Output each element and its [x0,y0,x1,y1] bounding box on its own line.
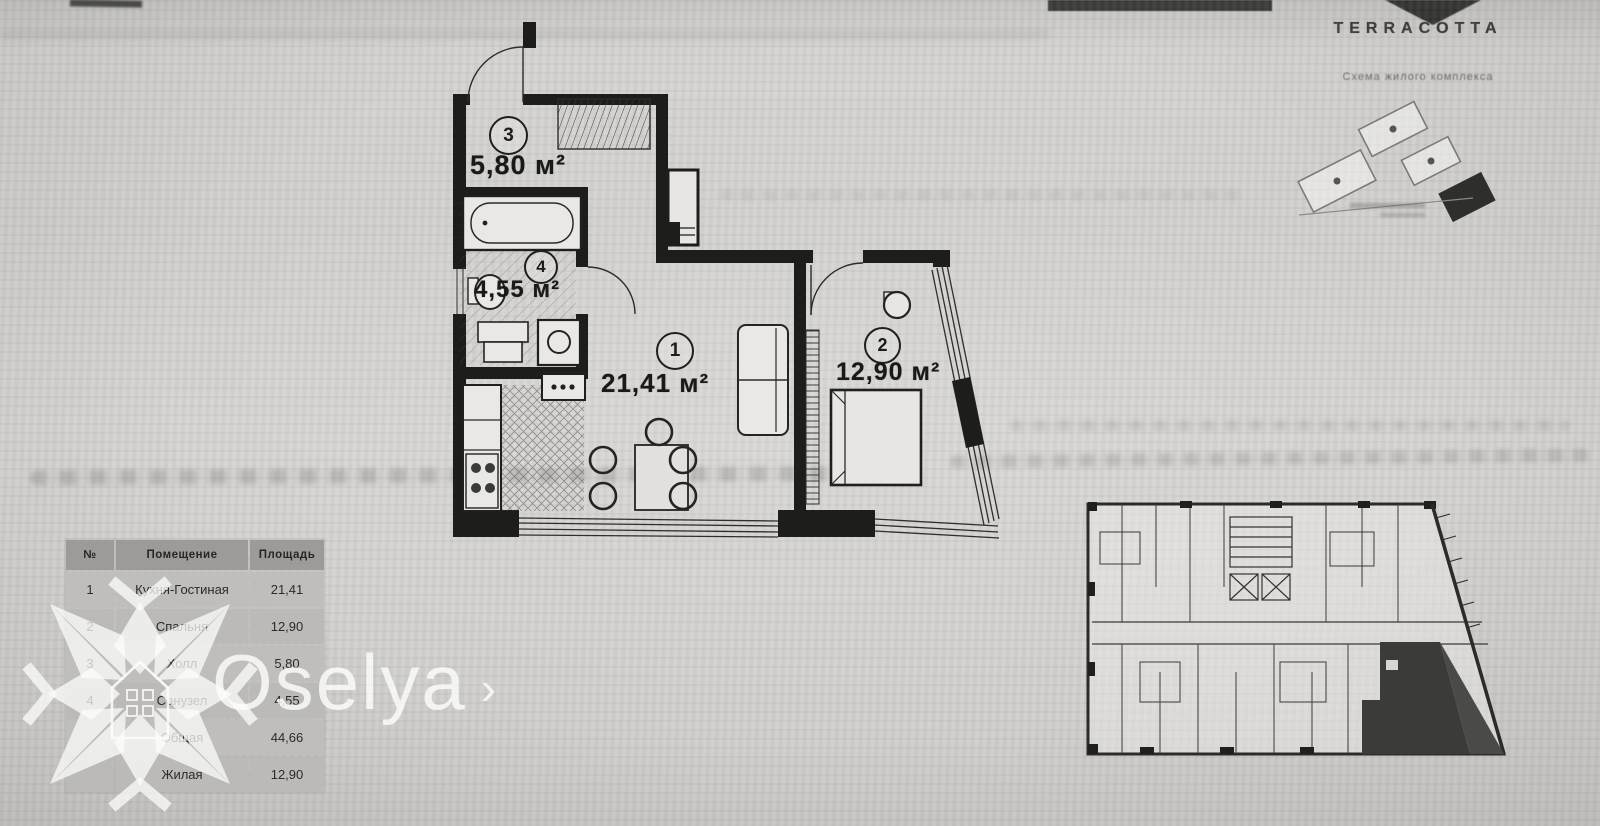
brand-subtitle: Схема жилого комплекса [1308,71,1528,83]
radiator-strip [806,330,819,504]
brand-name: TERRACOTTA [1318,20,1518,38]
table-row: Общая44,66 [66,720,324,755]
table-row: 4Санузел4,55 [66,683,324,718]
scanned-floorplan-page: { "brand": { "name": "TERRACOTTA", "subt… [0,0,1600,826]
watermark-chevron: › [481,661,498,715]
table-row: Жилая12,90 [66,757,324,792]
bleed-text-smudge [950,449,1590,469]
room-2-area: 12,90 м² [836,358,940,387]
bedroom-bottom-window [875,519,999,538]
table-row: 2Спальня12,90 [66,609,324,644]
room-1-number: 1 [656,332,694,370]
highlighted-building [1438,172,1495,222]
bathroom-door [588,267,635,314]
sofa [738,325,788,435]
room-areas-table: № Помещение Площадь 1Кухня-Гостиная21,41… [64,538,326,794]
nightstand [884,292,910,318]
window-pier [952,377,984,448]
entrance-door [468,47,523,102]
living-window [519,518,778,537]
room-4-area: 4,55 м² [474,276,560,304]
map-caption-blur [1350,203,1425,208]
stove [466,454,498,508]
col-header-area: Площадь [250,540,324,570]
table-header-row: № Помещение Площадь [66,540,324,570]
hall-wardrobe [558,99,650,149]
residential-complex-map [1295,85,1505,225]
kitchen-counter [463,385,501,511]
bathtub [463,196,581,250]
table-row: 1Кухня-Гостиная21,41 [66,572,324,607]
col-header-number: № [66,540,114,570]
boiler-unit [542,374,585,400]
scan-dark-bar [1048,0,1272,11]
bleed-text-smudge [1010,420,1570,431]
toilet [478,322,528,362]
floor-overview-plan [1080,492,1510,767]
washing-machine [538,320,580,365]
room-1-area: 21,41 м² [601,368,709,399]
bedroom-door [811,263,863,315]
table-row: 3Холл5,80 [66,646,324,681]
col-header-room: Помещение [116,540,248,570]
kitchen-floor-tiles [500,385,584,511]
bed [831,390,921,485]
room-3-area: 5,80 м² [470,150,566,181]
scan-edge-artifact [70,0,142,8]
dining-set [590,419,696,510]
